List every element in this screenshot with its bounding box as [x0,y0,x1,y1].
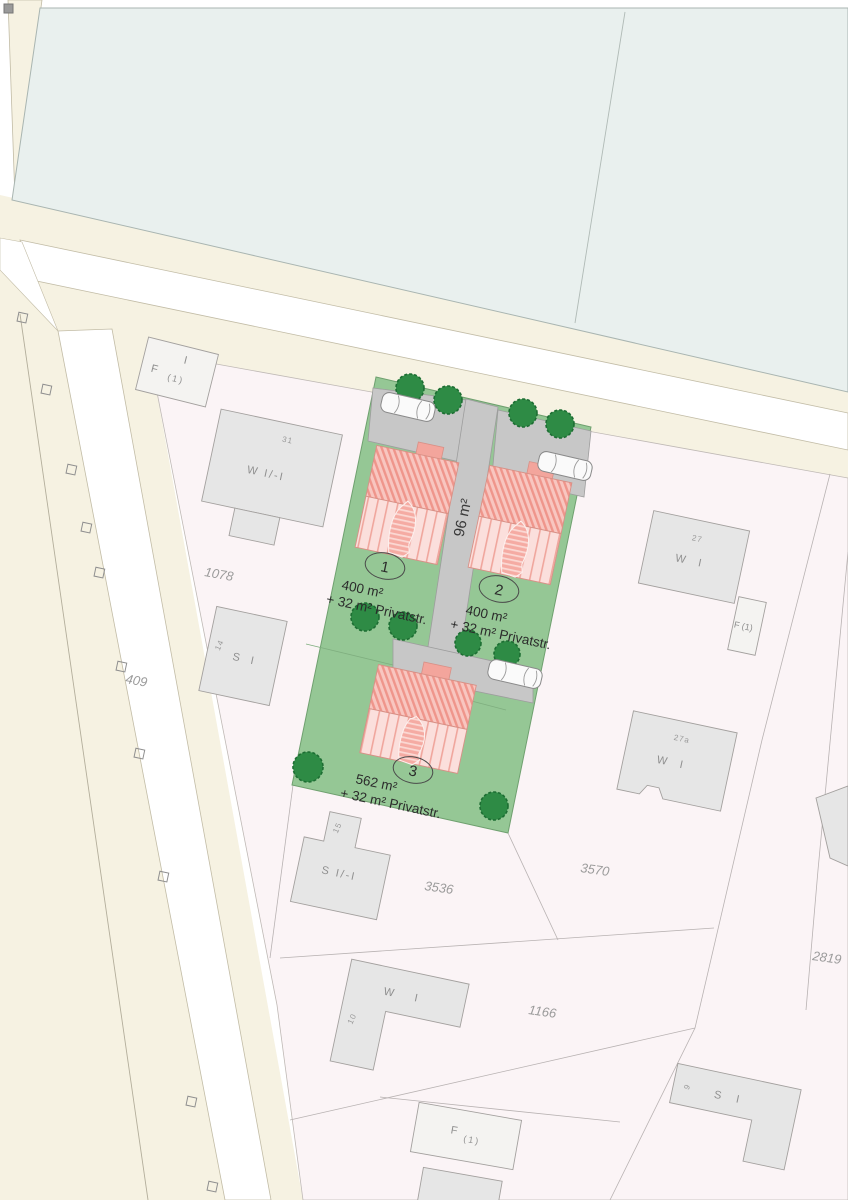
tree-icon [509,399,537,427]
site-plan-map: I F (1) 31 W I/-I 14 S I 27 W I F (1) 27… [0,0,848,1200]
tree-icon [434,386,462,414]
site-plan-page: I F (1) 31 W I/-I 14 S I 27 W I F (1) 27… [0,0,848,1200]
tree-icon [546,410,574,438]
tree-icon [480,792,508,820]
tree-icon [293,752,323,782]
survey-marker [4,4,13,13]
